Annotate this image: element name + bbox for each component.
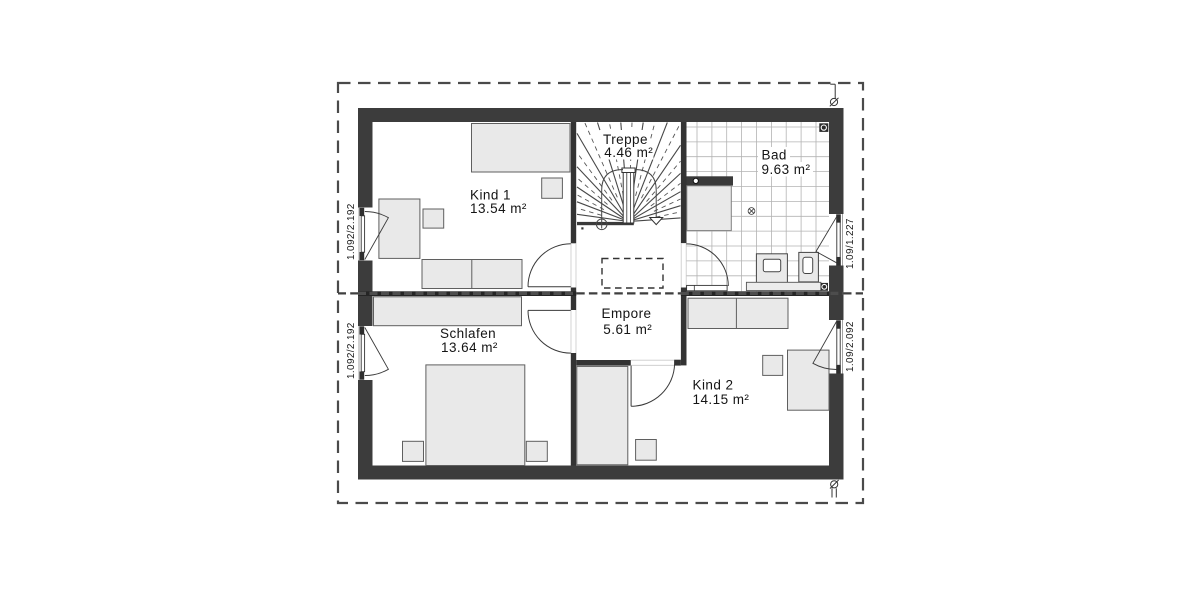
svg-text:Schlafen: Schlafen xyxy=(440,326,496,341)
svg-text:13.64 m²: 13.64 m² xyxy=(441,340,498,355)
svg-text:9.63 m²: 9.63 m² xyxy=(762,162,811,177)
svg-text:5.61 m²: 5.61 m² xyxy=(603,322,652,337)
svg-text:Bad: Bad xyxy=(762,148,787,163)
svg-text:4.46 m²: 4.46 m² xyxy=(604,145,653,160)
svg-text:13.54 m²: 13.54 m² xyxy=(470,201,527,216)
svg-text:14.15 m²: 14.15 m² xyxy=(693,392,750,407)
svg-text:1.09/1.227: 1.09/1.227 xyxy=(845,218,856,269)
svg-text:1.092/2.192: 1.092/2.192 xyxy=(346,322,357,379)
svg-text:Kind 2: Kind 2 xyxy=(693,378,734,393)
svg-text:1.09/2.092: 1.09/2.092 xyxy=(845,321,856,372)
svg-text:1.092/2.192: 1.092/2.192 xyxy=(346,203,357,260)
svg-text:Empore: Empore xyxy=(602,306,652,321)
